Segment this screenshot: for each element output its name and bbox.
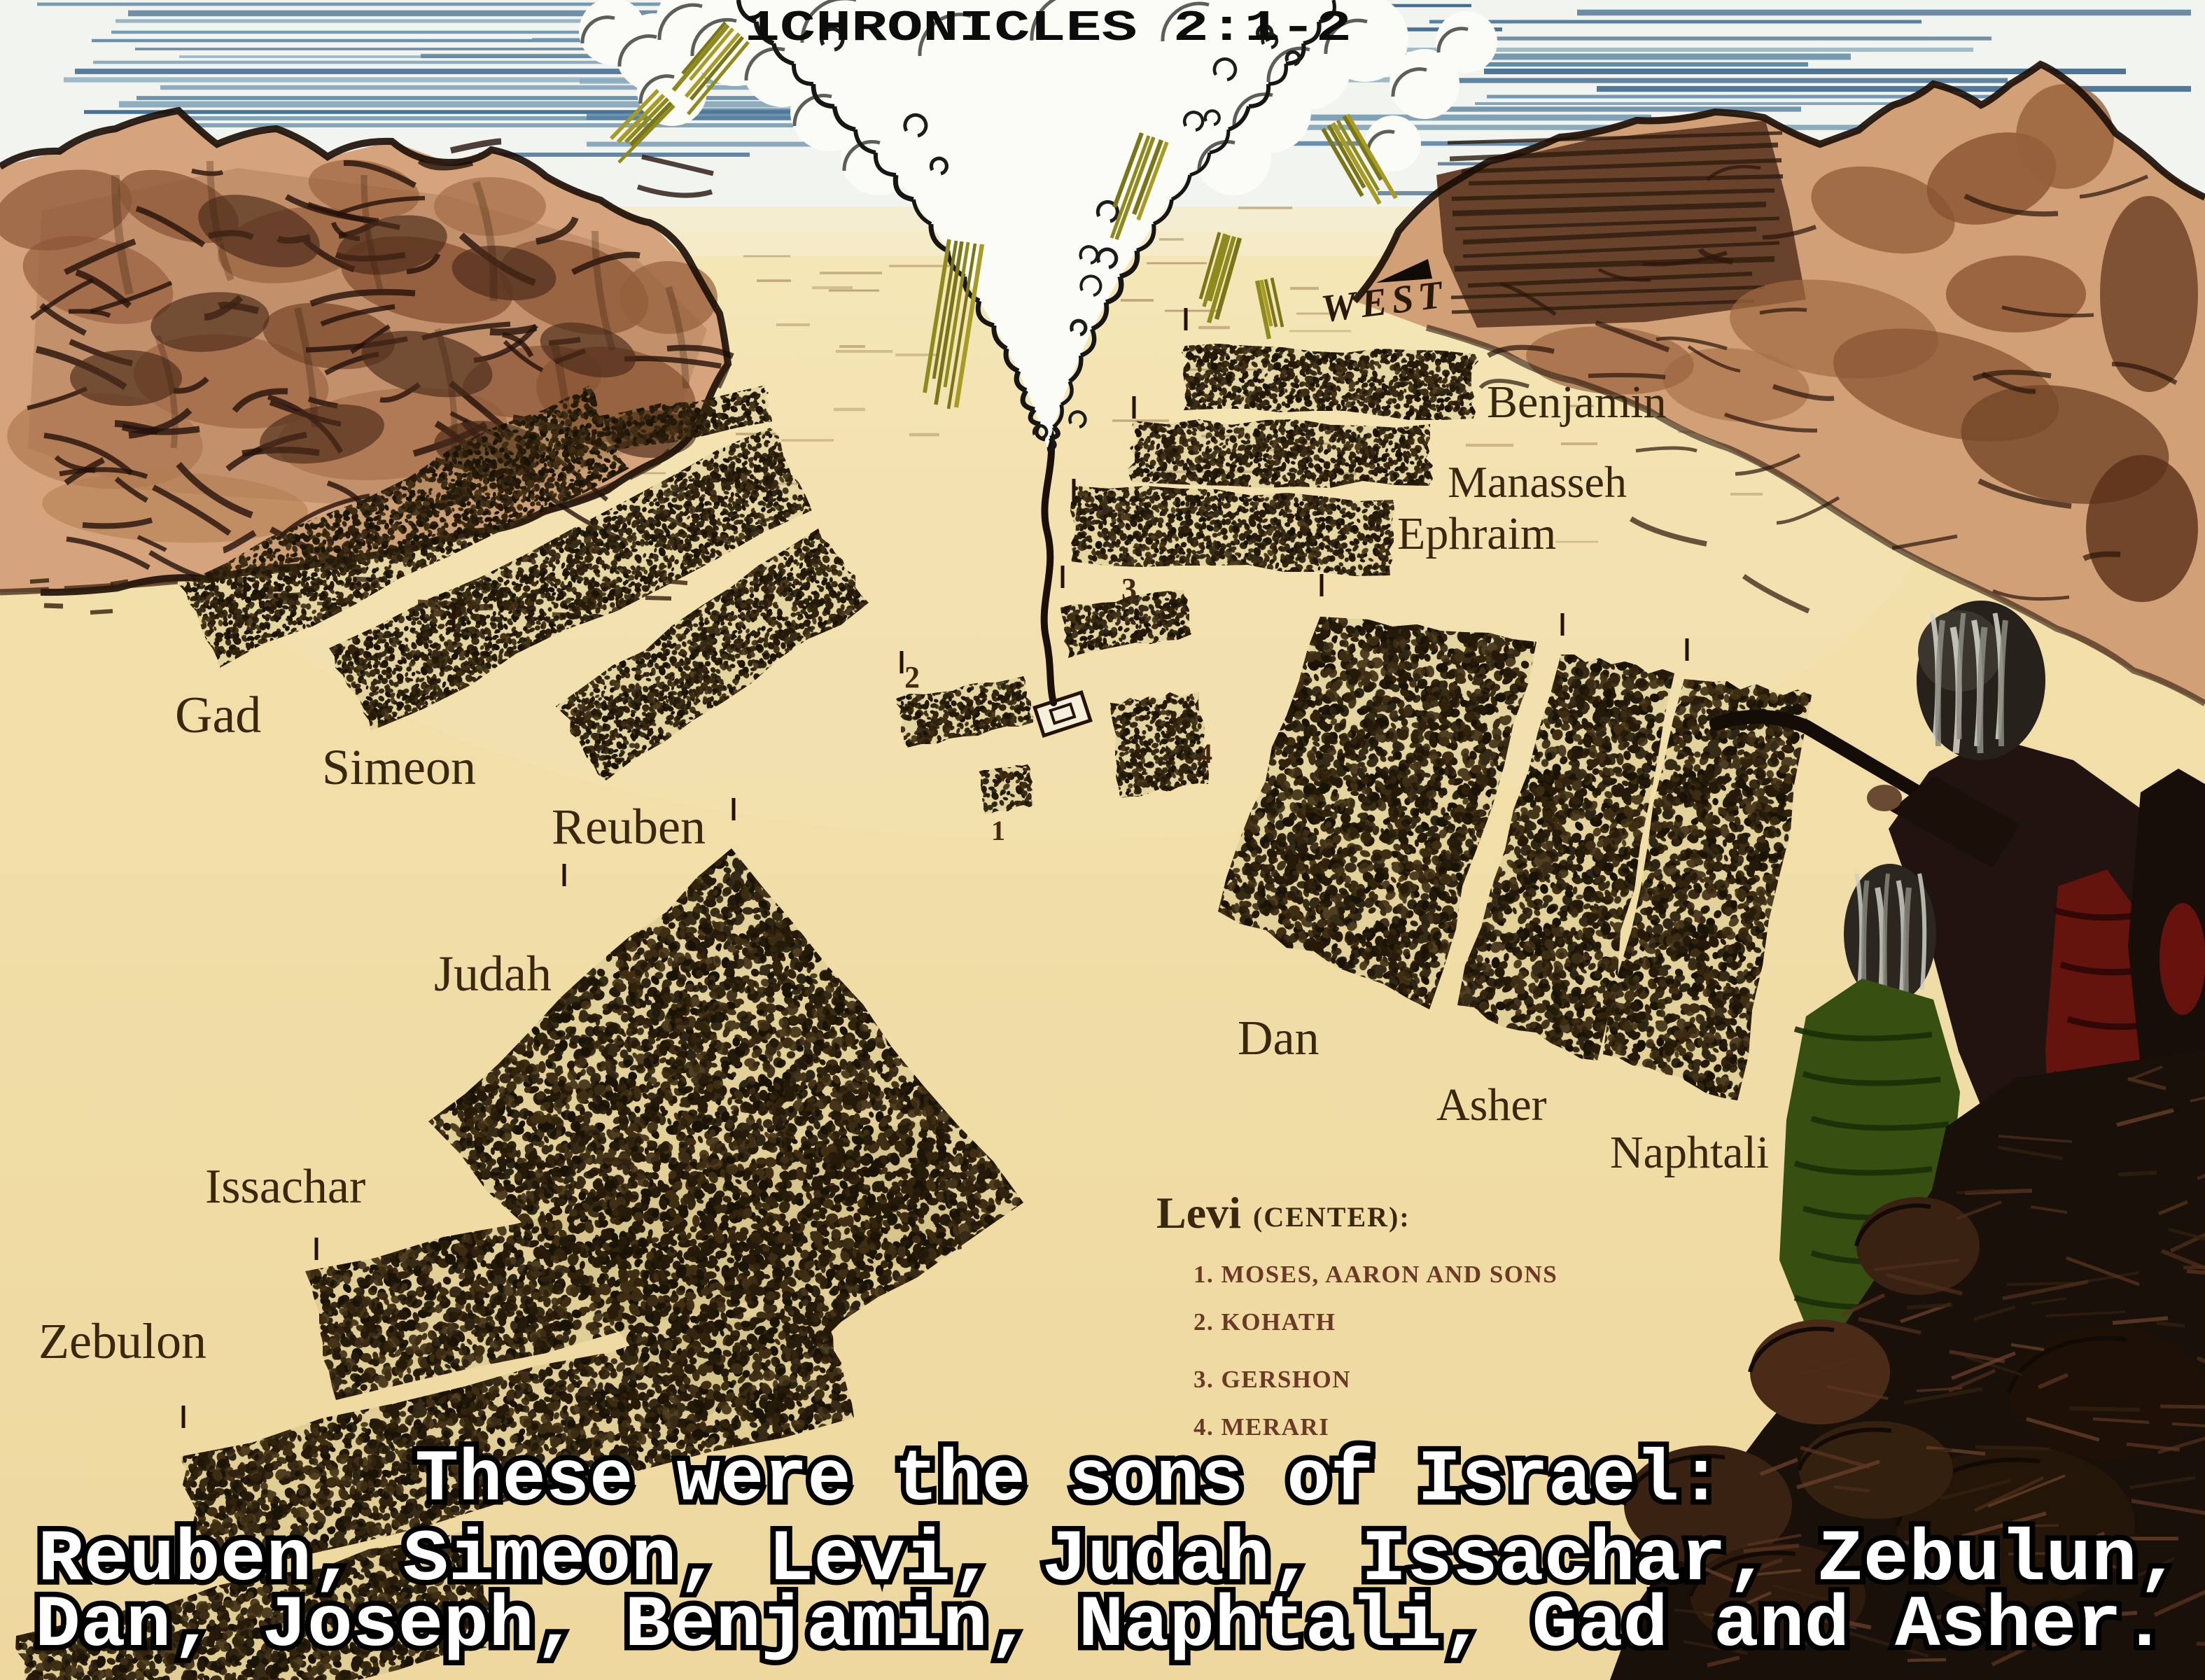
svg-text:Levi: Levi (1156, 1188, 1241, 1238)
svg-text:These were the sons of Israel:: These were the sons of Israel: (415, 1439, 1723, 1522)
svg-text:Dan, Joseph, Benjamin, Naphtal: Dan, Joseph, Benjamin, Naphtali, Gad and… (35, 1585, 2167, 1667)
svg-text:1. MOSES, AARON AND SONS: 1. MOSES, AARON AND SONS (1193, 1261, 1557, 1288)
svg-text:Zebulon: Zebulon (38, 1313, 206, 1369)
svg-text:4: 4 (1198, 738, 1212, 769)
svg-text:Issachar: Issachar (205, 1160, 365, 1214)
svg-text:3: 3 (1121, 572, 1137, 606)
svg-text:1CHRONICLES 2:1-2: 1CHRONICLES 2:1-2 (744, 3, 1352, 53)
svg-text:Manasseh: Manasseh (1448, 457, 1627, 507)
svg-text:Dan: Dan (1238, 1011, 1319, 1065)
svg-text:(CENTER):: (CENTER): (1253, 1201, 1410, 1233)
svg-text:Judah: Judah (434, 946, 552, 1002)
svg-text:Gad: Gad (175, 687, 261, 744)
svg-text:Asher: Asher (1436, 1079, 1547, 1130)
svg-text:Ephraim: Ephraim (1397, 508, 1556, 559)
svg-text:Naphtali: Naphtali (1610, 1127, 1769, 1178)
svg-text:1: 1 (991, 815, 1005, 846)
svg-text:Reuben: Reuben (552, 799, 706, 855)
svg-text:3. GERSHON: 3. GERSHON (1193, 1366, 1351, 1393)
svg-text:w: w (998, 763, 1014, 786)
svg-text:2: 2 (904, 660, 920, 694)
svg-text:Benjamin: Benjamin (1487, 377, 1667, 428)
svg-text:4. MERARI: 4. MERARI (1193, 1413, 1329, 1441)
svg-text:2. KOHATH: 2. KOHATH (1193, 1308, 1336, 1336)
svg-text:Simeon: Simeon (322, 739, 476, 795)
